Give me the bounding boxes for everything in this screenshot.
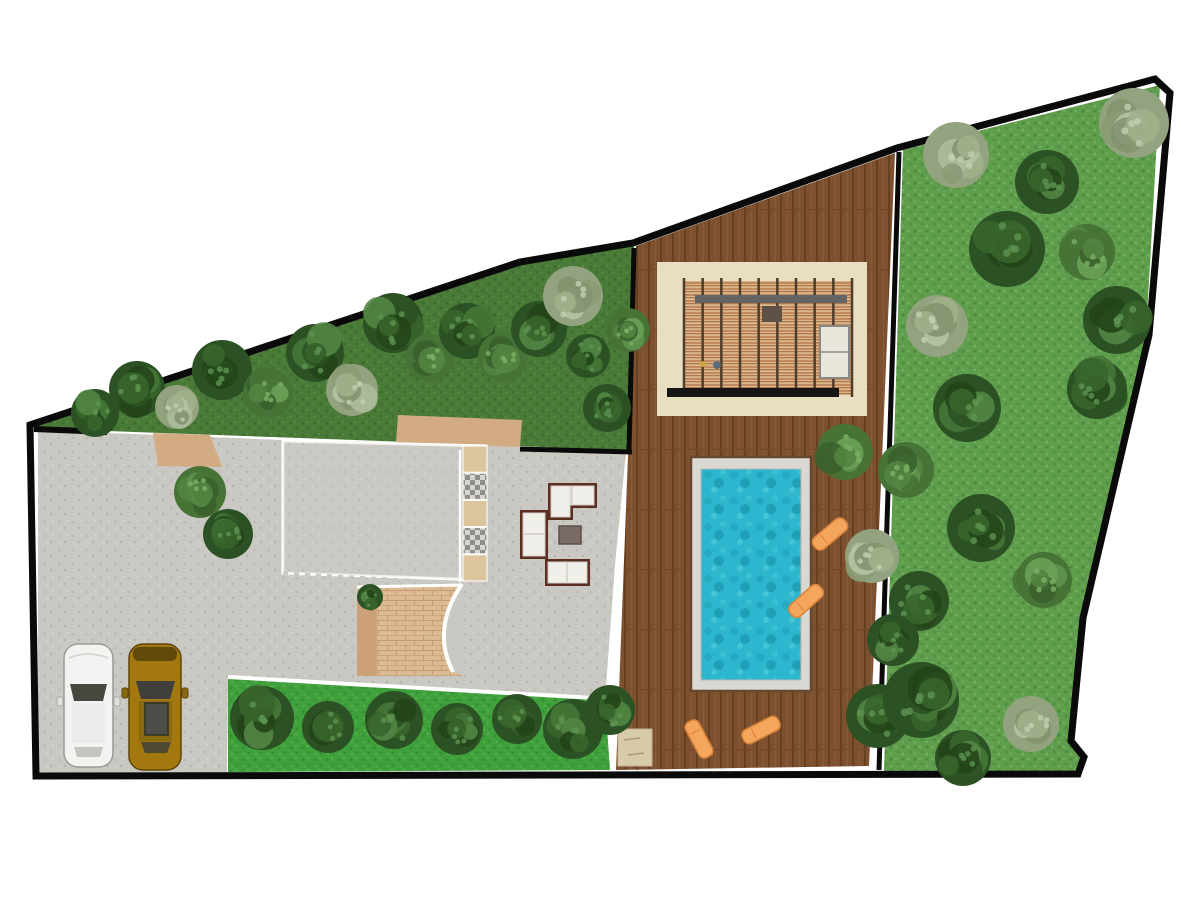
tree <box>492 694 542 744</box>
gold-car-mirror <box>182 688 188 698</box>
tree <box>1099 88 1169 158</box>
tree <box>566 334 610 378</box>
stepping-pad <box>618 729 652 766</box>
white-car-windshield <box>70 684 107 701</box>
pergola <box>657 262 867 416</box>
tree <box>969 211 1045 287</box>
pergola-block <box>762 306 782 322</box>
tree <box>878 442 934 498</box>
tree <box>883 662 959 738</box>
front-sofa <box>545 559 590 586</box>
tree <box>889 571 949 631</box>
tree <box>192 340 252 400</box>
site-plan-svg <box>0 0 1200 897</box>
site-plan <box>0 0 1200 897</box>
pool-water <box>701 469 801 680</box>
gold-car-sunroof <box>145 703 168 735</box>
tree <box>585 685 635 735</box>
gold-car-rear-window <box>141 742 171 753</box>
white-car-rear-window <box>74 747 103 757</box>
tree <box>543 266 603 326</box>
tree <box>1003 696 1059 752</box>
tree <box>947 494 1015 562</box>
tree <box>933 374 1001 442</box>
tree <box>1059 224 1115 280</box>
tree <box>203 509 253 559</box>
white-car-mirror <box>114 697 120 706</box>
tree <box>1015 150 1079 214</box>
tree <box>906 295 968 357</box>
tree <box>845 529 899 583</box>
white-car-roof <box>72 703 105 743</box>
tree <box>365 691 423 749</box>
tree <box>155 385 199 429</box>
gold-car-mirror <box>122 688 128 698</box>
tree <box>431 703 483 755</box>
white-car-mirror <box>57 697 63 706</box>
tree <box>326 364 378 416</box>
swimming-pool <box>691 457 811 691</box>
side-sofa <box>520 510 548 559</box>
gold-car-hood <box>133 647 177 661</box>
tile-accent-strip <box>463 446 487 581</box>
tree <box>935 730 991 786</box>
pergola-detail-dot <box>713 361 721 369</box>
coffee-table <box>559 526 581 544</box>
tree <box>583 384 631 432</box>
top-walkway <box>396 415 522 447</box>
gold-car <box>122 644 188 770</box>
tree <box>606 308 650 352</box>
tree <box>923 122 989 188</box>
pergola-beam <box>695 295 847 303</box>
tree <box>174 466 226 518</box>
pergola-detail-dot <box>700 361 706 367</box>
tree <box>302 701 354 753</box>
white-car <box>57 644 120 767</box>
pergola-base-bar <box>667 388 839 397</box>
paved-terrace <box>283 441 486 583</box>
gold-car-windshield <box>136 681 175 699</box>
